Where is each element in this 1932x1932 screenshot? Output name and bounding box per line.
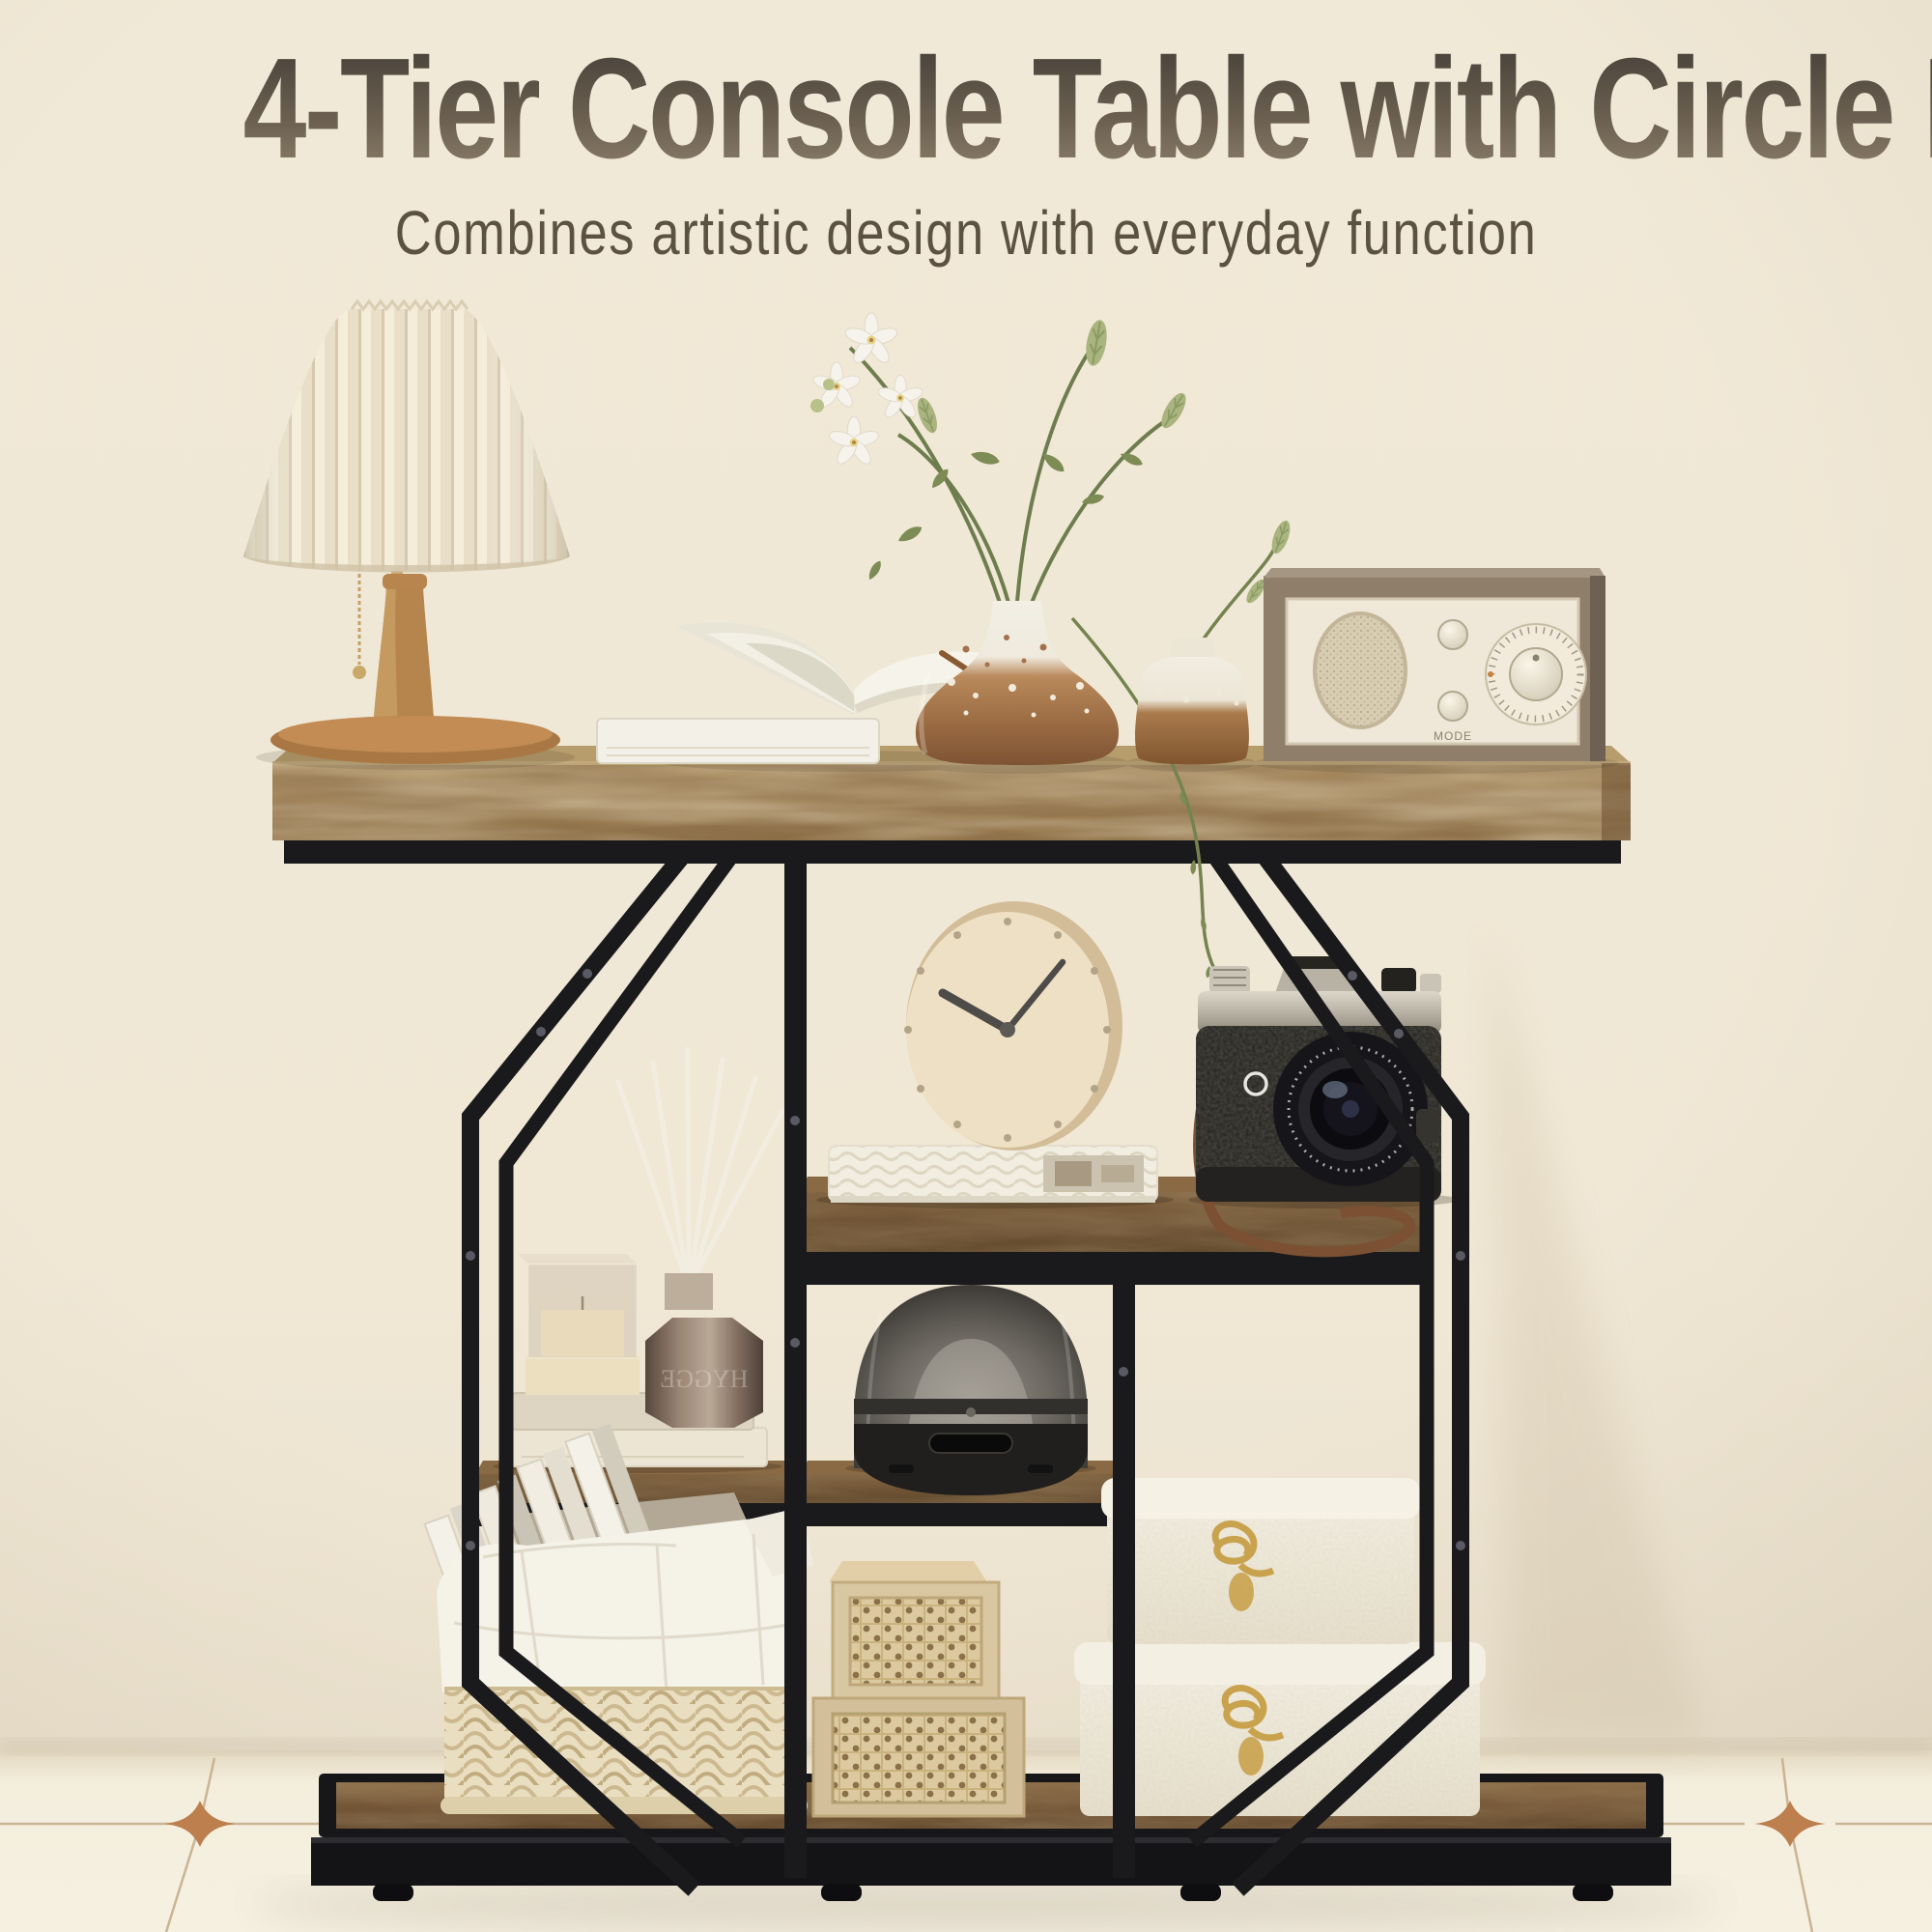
hero-copy: 4-Tier Console Table with Circle Base Co… (0, 0, 1932, 269)
radio-mode-label: MODE (1434, 729, 1472, 743)
radio-tuning-dial (1486, 624, 1586, 724)
page-subtitle: Combines artistic design with everyday f… (395, 197, 1538, 269)
aroma-diffuser (854, 1285, 1088, 1495)
page-title: 4-Tier Console Table with Circle Base (243, 27, 1932, 191)
scene-illustration: MODE (0, 0, 1932, 1932)
clock-book (829, 1146, 1157, 1203)
radio-speaker-grille (1315, 613, 1406, 727)
product-hero: MODE (0, 0, 1932, 1932)
diffuser-label: HYGGE (661, 1365, 749, 1393)
tabletop-metal-rim (284, 840, 1621, 864)
retro-radio: MODE (1264, 568, 1605, 761)
rattan-crates (813, 1561, 1024, 1816)
glass-display-box (518, 1254, 639, 1395)
